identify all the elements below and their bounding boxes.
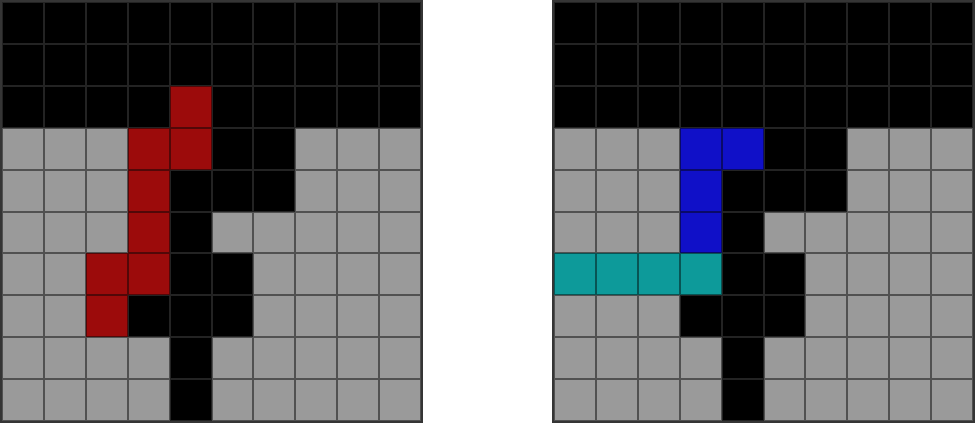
grid-separator: [423, 0, 552, 423]
grid-cell: [554, 212, 596, 254]
grid-cell: [295, 379, 337, 421]
grid-cell: [128, 86, 170, 128]
grid-cell: [2, 337, 44, 379]
grid-cell: [847, 337, 889, 379]
grid-cell: [889, 379, 931, 421]
grid-cell: [805, 170, 847, 212]
grid-cell: [638, 337, 680, 379]
grid-cell: [847, 379, 889, 421]
grid-cell: [554, 128, 596, 170]
grid-cell: [722, 170, 764, 212]
grid-cell: [86, 170, 128, 212]
grid-cell: [2, 212, 44, 254]
grid-cell: [722, 295, 764, 337]
grid-cell: [170, 253, 212, 295]
grid-cell: [379, 128, 421, 170]
grid-cell: [680, 86, 722, 128]
grid-cell: [44, 212, 86, 254]
grid-cell: [212, 128, 254, 170]
grid-cell: [805, 212, 847, 254]
grid-cell: [847, 2, 889, 44]
grid-cell: [44, 128, 86, 170]
grid-cell: [44, 337, 86, 379]
grid-cell: [2, 379, 44, 421]
grid-cell: [170, 128, 212, 170]
grid-cell: [596, 128, 638, 170]
grid-cell: [337, 170, 379, 212]
grid-cell: [847, 44, 889, 86]
grid-cell: [596, 212, 638, 254]
grid-cell: [212, 295, 254, 337]
grid-cell: [889, 295, 931, 337]
grid-cell: [44, 379, 86, 421]
grid-cell: [805, 337, 847, 379]
grid-cell: [638, 128, 680, 170]
grid-cell: [596, 379, 638, 421]
grid-cell: [680, 379, 722, 421]
grid-cell: [86, 44, 128, 86]
grid-cell: [805, 86, 847, 128]
grid-cell: [295, 212, 337, 254]
grid-cell: [638, 295, 680, 337]
grid-cell: [379, 212, 421, 254]
grid-cell: [86, 337, 128, 379]
grid-cell: [337, 212, 379, 254]
grid-cell: [212, 337, 254, 379]
grid-cell: [554, 337, 596, 379]
grid-cell: [847, 128, 889, 170]
grid-cell: [722, 86, 764, 128]
grid-cell: [847, 170, 889, 212]
grid-cell: [554, 379, 596, 421]
grid-cell: [212, 2, 254, 44]
grid-cell: [44, 44, 86, 86]
grid-cell: [805, 2, 847, 44]
grid-cell: [128, 170, 170, 212]
grid-cell: [722, 379, 764, 421]
grid-cell: [680, 212, 722, 254]
grid-cell: [86, 212, 128, 254]
grid-cell: [337, 44, 379, 86]
grid-cell: [379, 44, 421, 86]
grid-cell: [931, 128, 973, 170]
grid-cell: [805, 379, 847, 421]
grid-cell: [638, 253, 680, 295]
grid-cell: [931, 2, 973, 44]
grid-cell: [2, 128, 44, 170]
grid-cell: [295, 2, 337, 44]
grid-cell: [86, 295, 128, 337]
grid-cell: [805, 253, 847, 295]
grid-cell: [379, 295, 421, 337]
grid-cell: [86, 86, 128, 128]
grid-cell: [337, 295, 379, 337]
grid-cell: [337, 128, 379, 170]
grid-cell: [764, 170, 806, 212]
grid-cell: [253, 212, 295, 254]
grid-cell: [805, 44, 847, 86]
grid-cell: [764, 128, 806, 170]
grid-cell: [253, 44, 295, 86]
grid-cell: [764, 86, 806, 128]
grid-cell: [86, 128, 128, 170]
grid-cell: [931, 170, 973, 212]
grid-cell: [379, 2, 421, 44]
grid-cell: [128, 2, 170, 44]
grid-cell: [295, 337, 337, 379]
grid-cell: [764, 2, 806, 44]
grid-cell: [337, 337, 379, 379]
grid-cell: [680, 253, 722, 295]
grid-pair-canvas: [0, 0, 975, 423]
grid-cell: [337, 2, 379, 44]
grid-cell: [680, 295, 722, 337]
grid-cell: [596, 86, 638, 128]
grid-cell: [379, 170, 421, 212]
grid-cell: [128, 253, 170, 295]
grid-cell: [128, 44, 170, 86]
grid-cell: [2, 253, 44, 295]
grid-cell: [379, 253, 421, 295]
grid-cell: [680, 170, 722, 212]
grid-cell: [2, 86, 44, 128]
grid-cell: [889, 128, 931, 170]
grid-cell: [295, 86, 337, 128]
grid-cell: [889, 253, 931, 295]
grid-cell: [379, 86, 421, 128]
grid-cell: [931, 44, 973, 86]
grid-cell: [253, 379, 295, 421]
grid-cell: [722, 2, 764, 44]
grid-cell: [847, 253, 889, 295]
grid-cell: [44, 295, 86, 337]
grid-cell: [212, 379, 254, 421]
grid-cell: [764, 212, 806, 254]
left-puzzle-grid: [0, 0, 423, 423]
grid-cell: [379, 379, 421, 421]
grid-cell: [128, 295, 170, 337]
grid-cell: [554, 44, 596, 86]
right-puzzle-grid: [552, 0, 975, 423]
grid-cell: [889, 212, 931, 254]
grid-cell: [680, 128, 722, 170]
grid-cell: [170, 337, 212, 379]
grid-cell: [128, 212, 170, 254]
grid-cell: [170, 170, 212, 212]
grid-cell: [253, 128, 295, 170]
grid-cell: [889, 337, 931, 379]
grid-cell: [638, 44, 680, 86]
grid-cell: [44, 2, 86, 44]
grid-cell: [379, 337, 421, 379]
grid-cell: [170, 2, 212, 44]
grid-cell: [889, 86, 931, 128]
grid-cell: [931, 295, 973, 337]
grid-cell: [596, 170, 638, 212]
grid-cell: [638, 170, 680, 212]
grid-cell: [554, 170, 596, 212]
grid-cell: [212, 212, 254, 254]
grid-cell: [295, 295, 337, 337]
grid-cell: [722, 337, 764, 379]
grid-cell: [253, 253, 295, 295]
grid-cell: [847, 295, 889, 337]
grid-cell: [638, 86, 680, 128]
grid-cell: [596, 253, 638, 295]
grid-cell: [2, 295, 44, 337]
grid-cell: [596, 295, 638, 337]
grid-cell: [295, 170, 337, 212]
grid-cell: [44, 170, 86, 212]
grid-cell: [253, 170, 295, 212]
grid-cell: [170, 295, 212, 337]
grid-cell: [931, 337, 973, 379]
grid-cell: [931, 253, 973, 295]
grid-cell: [596, 44, 638, 86]
grid-cell: [253, 337, 295, 379]
grid-cell: [170, 44, 212, 86]
grid-cell: [931, 212, 973, 254]
grid-cell: [86, 379, 128, 421]
grid-cell: [638, 379, 680, 421]
grid-cell: [2, 170, 44, 212]
grid-cell: [722, 212, 764, 254]
grid-cell: [170, 379, 212, 421]
grid-cell: [764, 337, 806, 379]
grid-cell: [337, 379, 379, 421]
grid-cell: [253, 86, 295, 128]
grid-cell: [212, 170, 254, 212]
grid-cell: [680, 337, 722, 379]
grid-cell: [128, 128, 170, 170]
grid-cell: [86, 253, 128, 295]
grid-cell: [889, 170, 931, 212]
grid-cell: [212, 253, 254, 295]
grid-cell: [764, 295, 806, 337]
grid-cell: [638, 212, 680, 254]
grid-cell: [170, 86, 212, 128]
grid-cell: [337, 253, 379, 295]
grid-cell: [847, 212, 889, 254]
grid-cell: [889, 2, 931, 44]
grid-cell: [295, 128, 337, 170]
grid-cell: [805, 128, 847, 170]
grid-cell: [931, 379, 973, 421]
grid-cell: [212, 86, 254, 128]
grid-cell: [596, 337, 638, 379]
grid-cell: [805, 295, 847, 337]
grid-cell: [2, 2, 44, 44]
grid-cell: [44, 86, 86, 128]
grid-cell: [212, 44, 254, 86]
grid-cell: [170, 212, 212, 254]
grid-cell: [253, 295, 295, 337]
grid-cell: [554, 295, 596, 337]
grid-cell: [128, 379, 170, 421]
grid-cell: [764, 379, 806, 421]
grid-cell: [889, 44, 931, 86]
grid-cell: [554, 2, 596, 44]
grid-cell: [722, 128, 764, 170]
grid-cell: [253, 2, 295, 44]
grid-cell: [931, 86, 973, 128]
grid-cell: [596, 2, 638, 44]
grid-cell: [337, 86, 379, 128]
grid-cell: [722, 44, 764, 86]
grid-cell: [44, 253, 86, 295]
grid-cell: [86, 2, 128, 44]
grid-cell: [295, 253, 337, 295]
grid-cell: [295, 44, 337, 86]
grid-cell: [680, 44, 722, 86]
grid-cell: [680, 2, 722, 44]
grid-cell: [847, 86, 889, 128]
grid-cell: [554, 86, 596, 128]
grid-cell: [638, 2, 680, 44]
grid-cell: [764, 253, 806, 295]
grid-cell: [764, 44, 806, 86]
grid-cell: [554, 253, 596, 295]
grid-cell: [2, 44, 44, 86]
grid-cell: [128, 337, 170, 379]
grid-cell: [722, 253, 764, 295]
